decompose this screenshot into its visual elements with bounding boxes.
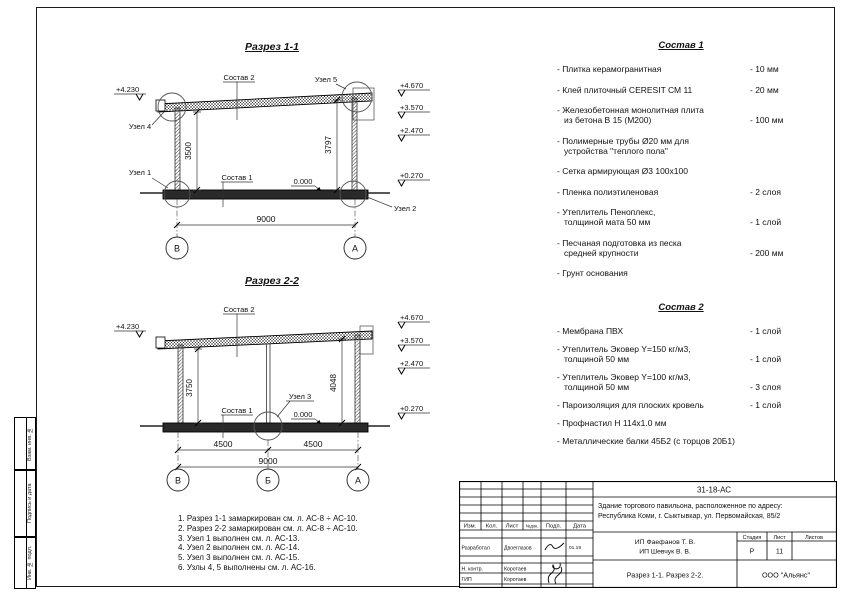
label-zero: 0.000	[294, 410, 313, 419]
note-line: 3. Узел 1 выполнен см. л. АС-13.	[178, 534, 358, 544]
sostav1-title: Состав 1	[557, 40, 805, 51]
axis-letter-a: А	[355, 476, 361, 486]
parapet-box	[360, 326, 373, 354]
material-name: - Мембрана ПВХ	[557, 326, 750, 336]
side-stamp-inv: Инв. № подл.	[14, 537, 36, 589]
note-line: 6. Узлы 4, 5 выполнены см. л. АС-16.	[178, 563, 358, 573]
col-data: Дата	[573, 524, 587, 530]
axis-letter-v: В	[174, 244, 180, 254]
material-value: - 10 мм	[750, 64, 779, 74]
material-name: - Сетка армирующая Ø3 100х100	[557, 166, 750, 176]
material-name: - Железобетонная монолитная плита из бет…	[557, 105, 750, 125]
label-zero: 0.000	[294, 177, 313, 186]
material-name: - Утеплитель Эковер Y=150 кг/м3, толщино…	[557, 344, 750, 364]
sheet-title: Разрез 1-1. Разрез 2-2.	[627, 571, 704, 580]
elev-r2-text: +3.570	[400, 103, 423, 112]
ncontr-name: Коротаев	[504, 567, 527, 573]
gip-name: Коротаев	[504, 577, 527, 583]
material-value: - 2 слоя	[750, 187, 781, 197]
title-block: Изм. Кол. Лист №док. Подп. Дата Разработ…	[459, 481, 837, 588]
label-uzel1: Узел 1	[129, 168, 151, 177]
material-name: - Металлические балки 45Б2 (с торцов 20Б…	[557, 436, 750, 446]
material-value: - 100 мм	[750, 115, 783, 125]
leader-uzel1	[152, 178, 168, 188]
material-value: - 1 слой	[750, 354, 781, 364]
material-name: - Клей плиточный CERESIT СМ 11	[557, 85, 750, 95]
elev-right-group: +4.670 +3.570 +2.470 +0.270	[398, 81, 430, 186]
right-wall	[355, 335, 360, 423]
axis-letter-a: А	[352, 244, 358, 254]
elev-r1-text: +4.670	[400, 81, 423, 90]
elev-r3-text: +2.470	[400, 126, 423, 135]
dim-ticks	[194, 97, 340, 193]
list-item: - Профнастил Н 114х1.0 мм	[557, 418, 839, 428]
list-item: - Плитка керамогранитная- 10 мм	[557, 64, 839, 74]
side-stamp-podpis-label: Подпись и дата	[25, 471, 35, 536]
material-value: - 20 мм	[750, 85, 779, 95]
list-item: - Пароизоляция для плоских кровель- 1 сл…	[557, 400, 839, 410]
col-kol: Кол.	[486, 524, 498, 530]
sheets-label: Листов	[805, 535, 823, 541]
label-uzel3: Узел 3	[289, 392, 311, 401]
label-sostav1: Состав 1	[221, 406, 252, 415]
dim-4500-left: 4500	[214, 439, 233, 449]
list-item: - Полимерные трубы Ø20 мм для устройства…	[557, 136, 839, 156]
dim-9000: 9000	[257, 214, 276, 224]
leader-uzel4	[152, 112, 164, 125]
elev-r4-text: +0.270	[400, 171, 423, 180]
label-uzel2: Узел 2	[394, 204, 416, 213]
leader-uzel5	[336, 84, 346, 89]
label-sostav2: Состав 2	[223, 305, 254, 314]
list-item: - Металлические балки 45Б2 (с торцов 20Б…	[557, 436, 839, 446]
side-stamp-vzam-label: Взам. инв. №	[25, 418, 35, 469]
leader-uzel2	[367, 197, 392, 207]
material-value: - 1 слой	[750, 326, 781, 336]
label-sostav2: Состав 2	[223, 73, 254, 82]
axis-letter-b: Б	[265, 476, 271, 486]
floor-slab	[163, 190, 368, 199]
drawing-sheet: Взам. инв. № Подпись и дата Инв. № подл.…	[0, 0, 841, 595]
company-name: ООО "Альянс"	[762, 571, 811, 580]
note-line: 2. Разрез 2-2 замаркирован см. л. АС-8 ÷…	[178, 524, 358, 534]
material-value: - 200 мм	[750, 248, 783, 258]
list-item: - Мембрана ПВХ- 1 слой	[557, 326, 839, 336]
section-2-2-drawing: 3750 4048 4500 4500 9000 В Б А +4.230 +4…	[80, 272, 460, 497]
project-line1: Здание торгового павильона, расположенно…	[598, 503, 783, 510]
leader-sostav2	[223, 314, 255, 357]
list-item: - Утеплитель Эковер Y=100 кг/м3, толщино…	[557, 372, 839, 392]
material-value: - 1 слой	[750, 400, 781, 410]
sheet-value: 11	[776, 549, 783, 556]
ncontr-role: Н. контр.	[462, 567, 483, 573]
material-name: - Профнастил Н 114х1.0 мм	[557, 418, 750, 428]
sostav2-title: Состав 2	[557, 302, 805, 313]
note-line: 1. Разрез 1-1 замаркирован см. л. АС-8 ÷…	[178, 514, 358, 524]
label-uzel4: Узел 4	[129, 122, 151, 131]
sostav1-list: Состав 1 - Плитка керамогранитная- 10 мм…	[557, 40, 839, 289]
dim-4500-right: 4500	[304, 439, 323, 449]
list-item: - Сетка армирующая Ø3 100х100	[557, 166, 839, 176]
note-line: 5. Узел 3 выполнен см. л. АС-15.	[178, 553, 358, 563]
col-izm: Изм.	[464, 524, 477, 530]
material-name: - Грунт основания	[557, 268, 750, 278]
material-value: - 3 слоя	[750, 382, 781, 392]
material-name: - Утеплитель Пеноплекс, толщиной мата 50…	[557, 207, 750, 227]
elev-r1-text: +4.670	[400, 313, 423, 322]
dim-4048: 4048	[329, 374, 338, 392]
list-item: - Утеплитель Пеноплекс, толщиной мата 50…	[557, 207, 839, 227]
material-name: - Песчаная подготовка из песка средней к…	[557, 238, 750, 258]
material-name: - Полимерные трубы Ø20 мм для устройства…	[557, 136, 750, 156]
floor-slab	[163, 423, 368, 432]
sheet-label: Лист	[774, 535, 786, 541]
material-name: - Плитка керамогранитная	[557, 64, 750, 74]
elev-left-text: +4.230	[116, 85, 139, 94]
dim-3500: 3500	[184, 142, 193, 160]
project-line2: Республика Коми, г. Сыктывкар, ул. Перво…	[598, 512, 780, 520]
client-line1: ИП Фаефанов Т. В.	[635, 539, 696, 546]
elev-r4-text: +0.270	[400, 404, 423, 413]
material-name: - Пленка полиэтиленовая	[557, 187, 750, 197]
middle-column	[267, 344, 271, 423]
elev-left-flag	[136, 331, 143, 337]
side-stamp-podpis: Подпись и дата	[14, 470, 36, 537]
label-uzel5: Узел 5	[315, 75, 337, 84]
axis-letter-v: В	[175, 476, 181, 486]
notes-block: 1. Разрез 1-1 замаркирован см. л. АС-8 ÷…	[178, 514, 358, 573]
interior-dim-lines	[193, 100, 341, 190]
roof-slab	[158, 93, 372, 112]
list-item: - Железобетонная монолитная плита из бет…	[557, 105, 839, 125]
dim-9000: 9000	[259, 456, 278, 466]
elev-right-group: +4.670 +3.570 +2.470 +0.270	[398, 313, 430, 419]
elev-left-text: +4.230	[116, 322, 139, 331]
list-item: - Пленка полиэтиленовая- 2 слоя	[557, 187, 839, 197]
list-item: - Утеплитель Эковер Y=150 кг/м3, толщино…	[557, 344, 839, 364]
elev-r3-text: +2.470	[400, 359, 423, 368]
elev-left-flag	[136, 94, 143, 100]
left-wall	[178, 345, 183, 423]
col-list: Лист	[506, 524, 519, 530]
side-stamp-vzam: Взам. инв. №	[14, 417, 36, 470]
roof-left-endcap	[156, 100, 165, 111]
material-name: - Утеплитель Эковер Y=100 кг/м3, толщино…	[557, 372, 750, 392]
section-1-1-drawing: 3500 3797 9000 В А +4.230 +4.670 +3.570 …	[80, 32, 455, 264]
label-sostav1: Состав 1	[221, 173, 252, 182]
developer-role: Разработал	[462, 546, 490, 552]
roof-left-endcap	[156, 337, 165, 348]
roof-slab	[158, 331, 372, 349]
col-ndok: №док.	[526, 524, 539, 529]
sostav2-list: Состав 2 - Мембрана ПВХ- 1 слой - Утепли…	[557, 302, 839, 454]
gip-role: ГИП	[462, 577, 473, 583]
side-stamp-inv-label: Инв. № подл.	[25, 538, 35, 588]
dim-3750: 3750	[185, 379, 194, 397]
developer-name: Двоеглазов	[504, 546, 532, 552]
list-item: - Грунт основания	[557, 268, 839, 278]
developer-date: 01.19	[569, 545, 581, 551]
client-line2: ИП Шевчук В. В.	[639, 549, 691, 556]
dim-3797: 3797	[324, 136, 333, 154]
material-name: - Пароизоляция для плоских кровель	[557, 400, 750, 410]
stage-label: Стадия	[743, 535, 762, 541]
stage-value: Р	[750, 549, 755, 556]
material-value: - 1 слой	[750, 217, 781, 227]
elev-r2-text: +3.570	[400, 336, 423, 345]
list-item: - Песчаная подготовка из песка средней к…	[557, 238, 839, 258]
col-podp: Подп.	[546, 524, 562, 530]
note-line: 4. Узел 2 выполнен см. л. АС-14.	[178, 543, 358, 553]
list-item: - Клей плиточный CERESIT СМ 11- 20 мм	[557, 85, 839, 95]
doc-number: 31-18-АС	[697, 486, 731, 495]
